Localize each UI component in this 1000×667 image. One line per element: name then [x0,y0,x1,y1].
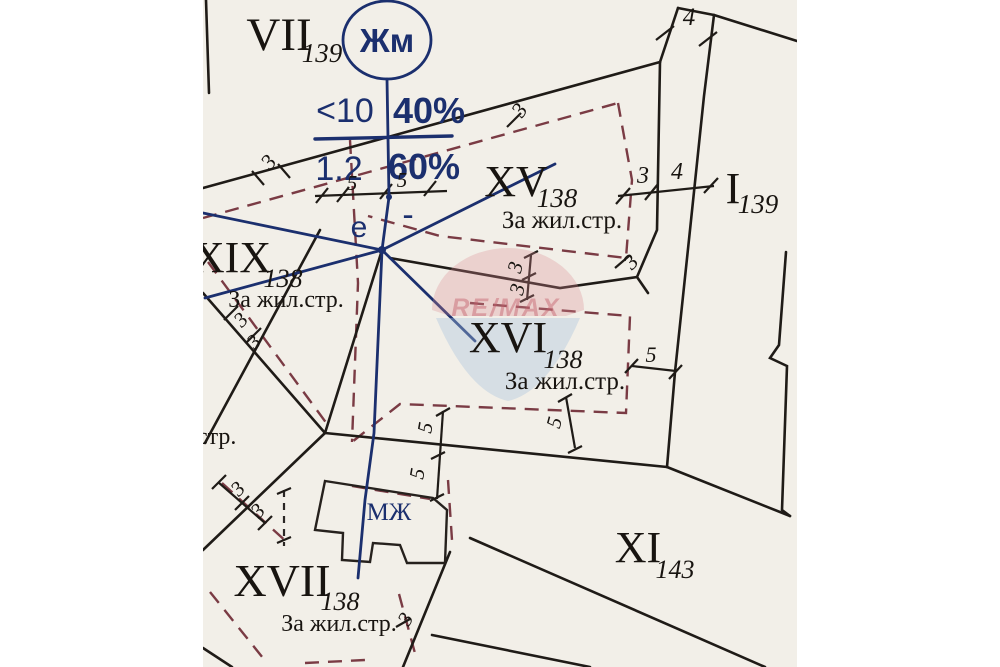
cadastral-map-screenshot: RE/MAX Жм <10 40% 1.2 60% е - МЖ VII 139… [0,0,1000,667]
dim-strip-right: 4 [671,159,683,185]
parcel-xix-use: За жил.стр. [228,287,344,313]
parcel-xvii-num: XVII [233,555,330,606]
right-white-margin [797,0,1000,667]
dim-hub-left: 5 [347,171,358,195]
parcel-xvii-use: За жил.стр. [281,611,397,637]
dim-hub-right: 5 [397,168,408,192]
planning-node [386,194,392,200]
note-dash: - [402,196,413,234]
note-e: е [351,211,368,244]
ratio-top-left: <10 [316,92,374,130]
parcel-xix-num: XIX [193,233,271,282]
dim-strip-left: 3 [636,163,649,189]
parcel-xi-num: XI [615,523,661,572]
building-label: МЖ [367,499,412,526]
zone-circle-label: Жм [359,22,414,59]
dim-xvi-right: 5 [646,342,657,367]
parcel-xvi-use: За жил.стр. [505,368,625,395]
parcel-i-sub: 139 [738,189,779,219]
parcel-xvi-num: XVI [469,313,547,362]
parcel-vii-sub: 139 [302,38,343,68]
left-white-margin [0,0,203,667]
parcel-xv-use: За жил.стр. [502,207,622,234]
cadastral-map: RE/MAX Жм <10 40% 1.2 60% е - МЖ VII 139… [0,0,1000,667]
dim-top-width: 4 [683,4,696,31]
planning-hub-node [378,246,386,254]
parcel-xi-sub: 143 [656,555,695,584]
ratio-top-right: 40% [393,90,465,131]
